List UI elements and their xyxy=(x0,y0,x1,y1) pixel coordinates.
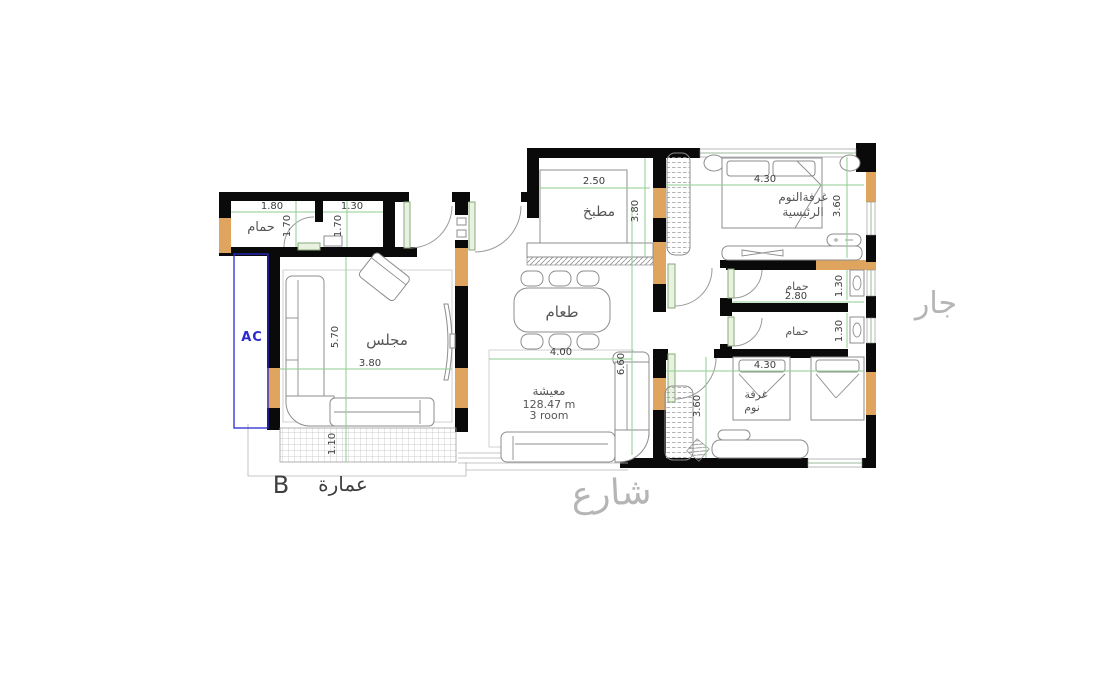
opening-dining-dashes xyxy=(457,218,466,237)
window-bath1-right xyxy=(867,270,875,296)
dim-kitchen-h: 3.80 xyxy=(630,200,641,222)
floor-plan-page: AC 1.80 1.30 1.70 1.70 5.70 3.80 1.10 2.… xyxy=(0,0,1096,693)
ac-label: AC xyxy=(241,330,263,345)
dim-wc-w: 1.30 xyxy=(341,201,363,212)
majlis-armchair xyxy=(358,251,411,302)
neighbor-label: جار xyxy=(913,286,957,321)
building-name: عمارة xyxy=(318,472,368,496)
entry-door-left xyxy=(404,202,452,248)
dim-living-h: 6.60 xyxy=(616,353,627,375)
bath2-vanity xyxy=(850,317,864,343)
dim-master-w: 4.30 xyxy=(754,174,776,185)
nightstand-lamp-left xyxy=(704,155,724,171)
label-master-line1: غرفةالنوم xyxy=(778,190,827,205)
label-master-line2: الرئيسية xyxy=(782,205,823,220)
dim-kitchen-w: 2.50 xyxy=(583,176,605,187)
label-living: معيشة xyxy=(533,384,566,398)
dim-balcony-d: 1.10 xyxy=(327,433,338,455)
dim-bedroom-h: 3.60 xyxy=(692,395,703,417)
floor-plan-canvas: AC 1.80 1.30 1.70 1.70 5.70 3.80 1.10 2.… xyxy=(0,0,1096,693)
window-master-right xyxy=(867,202,875,235)
master-wardrobe xyxy=(667,153,690,255)
nightstand-lamp-right xyxy=(840,155,860,171)
label-bath1: حمام xyxy=(785,280,808,293)
window-bath2-right xyxy=(867,318,875,343)
label-majlis: مجلس xyxy=(366,331,408,349)
building-letter: B xyxy=(273,471,289,499)
master-bench xyxy=(827,234,861,246)
dim-bedroom-w: 4.30 xyxy=(754,360,776,371)
dim-bath2-h: 1.30 xyxy=(834,320,845,342)
label-living-rooms: 3 room xyxy=(530,409,569,422)
label-bedroom-line1: غرفة xyxy=(745,388,768,401)
ac-zone: AC xyxy=(234,254,268,428)
entry-door-right xyxy=(469,202,521,252)
label-dining: طعام xyxy=(545,303,578,321)
bedroom-cabinet xyxy=(712,430,808,458)
bath1-vanity xyxy=(850,270,864,296)
master-dresser xyxy=(722,246,862,260)
master-bedroom-door xyxy=(668,264,712,308)
label-bedroom-line2: نوم xyxy=(744,401,760,414)
dim-bath-w: 1.80 xyxy=(261,201,283,212)
street-label: شارع xyxy=(570,471,652,516)
dim-living-w: 4.00 xyxy=(550,347,572,358)
window-master-top xyxy=(700,149,856,157)
dim-master-h: 3.60 xyxy=(832,195,843,217)
dim-bath1-h: 1.30 xyxy=(834,275,845,297)
bath2-door xyxy=(728,317,762,346)
label-bath-main: حمام xyxy=(247,220,275,235)
majlis-sofa xyxy=(286,276,434,426)
bedroom-bed-2 xyxy=(811,357,864,420)
window-bedroom-bottom xyxy=(808,459,862,467)
dim-bath-d1: 1.70 xyxy=(282,215,293,237)
label-bath2: حمام xyxy=(785,325,808,338)
dim-majlis-h: 5.70 xyxy=(330,326,341,348)
bath1-door xyxy=(728,269,762,298)
dim-bath-d2: 1.70 xyxy=(333,215,344,237)
label-kitchen: مطبخ xyxy=(583,204,615,220)
dim-majlis-w: 3.80 xyxy=(359,358,381,369)
